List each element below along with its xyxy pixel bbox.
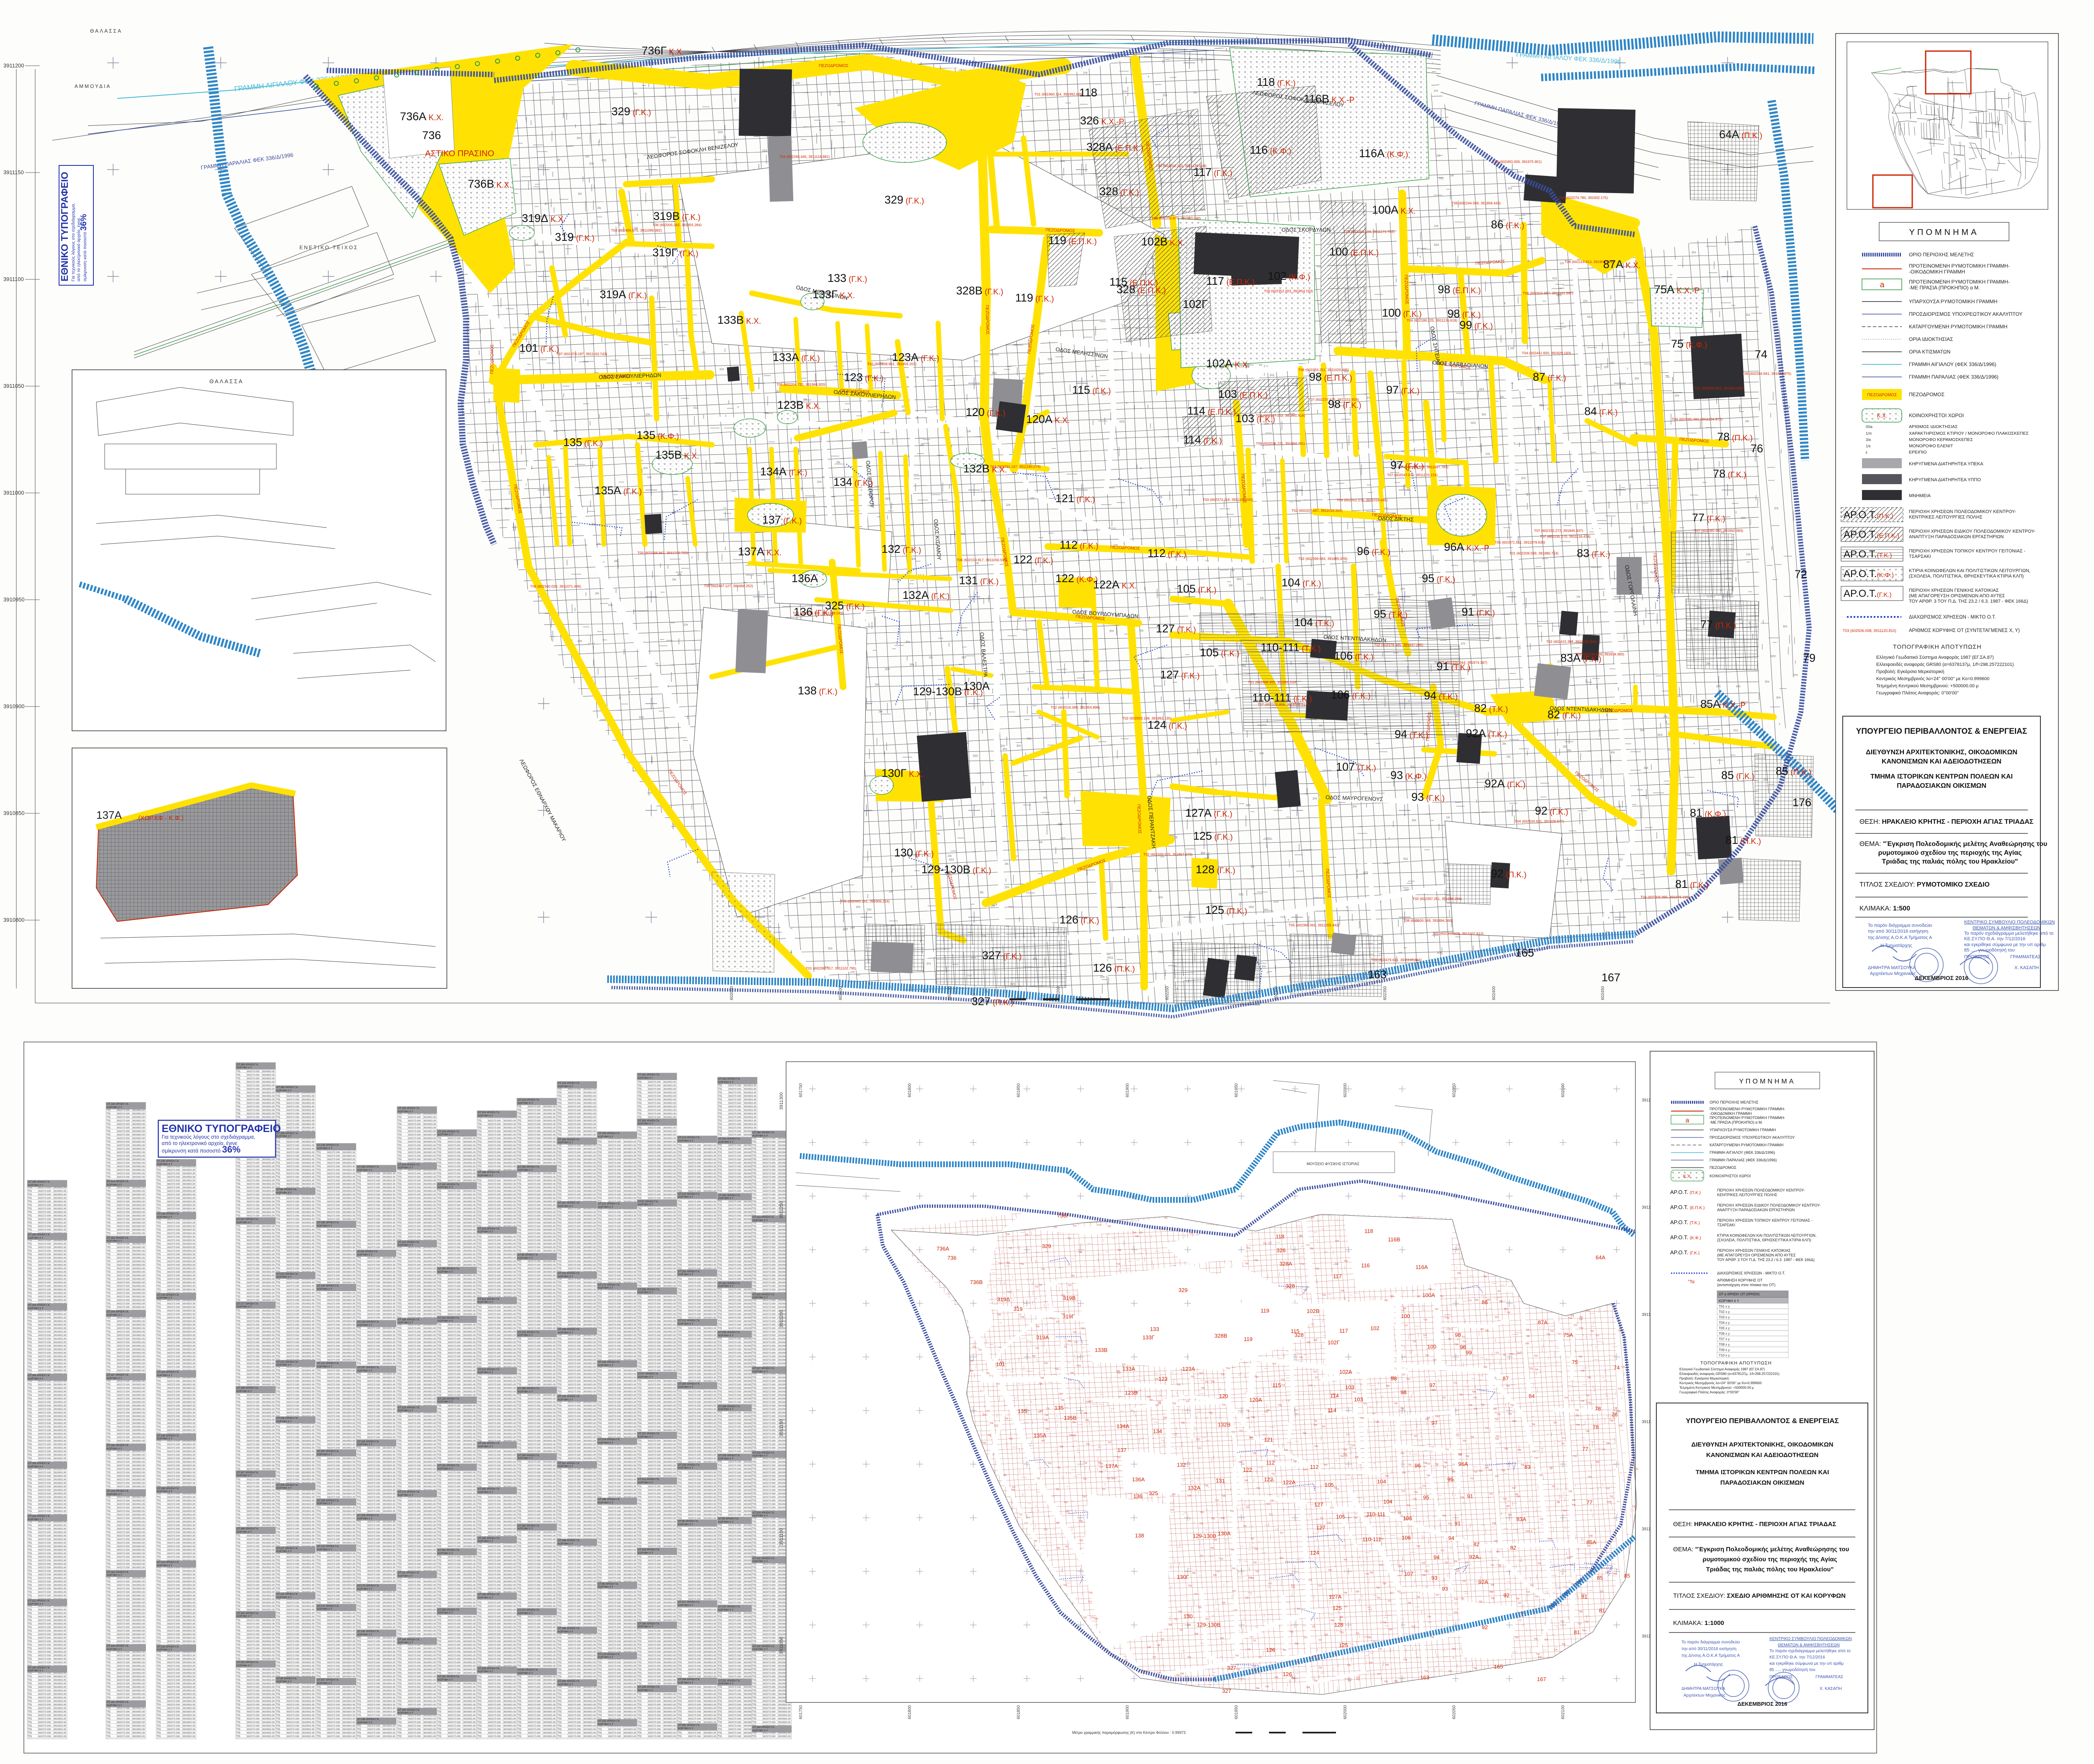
svg-text:την από 30/11/2016 εισήγηση: την από 30/11/2016 εισήγηση <box>1681 1646 1736 1651</box>
svg-text:T04 (602441.820, 391929.193): T04 (602441.820, 391929.193) <box>1522 351 1571 355</box>
svg-text:ΟΤ:153 ΧΡΗΣΗ Γ.Κ.: ΟΤ:153 ΧΡΗΣΗ Γ.Κ. <box>107 1237 129 1240</box>
svg-text:736Β: 736Β <box>970 1279 983 1285</box>
svg-text:ΚΑΤΑΡΓΟΥΜΕΝΗ ΡΥΜΟΤΟΜΙΚΗ ΓΡΑΜΜΗ: ΚΑΤΑΡΓΟΥΜΕΝΗ ΡΥΜΟΤΟΜΙΚΗ ΓΡΑΜΜΗ <box>1909 324 2007 330</box>
svg-text:1/π: 1/π <box>1060 697 1065 700</box>
svg-text:ΟΤ:188 ΧΡΗΣΗ Γ.Κ.: ΟΤ:188 ΧΡΗΣΗ Γ.Κ. <box>398 1319 420 1321</box>
svg-text:T28: T28 <box>1422 1574 1426 1577</box>
svg-text:ΚΟΡΥΦΗ Χ Υ: ΚΟΡΥΦΗ Χ Υ <box>518 1169 533 1172</box>
svg-text:ΚΟΡΥΦΗ Χ Υ: ΚΟΡΥΦΗ Χ Υ <box>357 1324 373 1327</box>
svg-text:1/π: 1/π <box>1452 738 1457 741</box>
svg-text:ΚΟΡΥΦΗ Χ Υ: ΚΟΡΥΦΗ Χ Υ <box>28 1184 44 1187</box>
svg-text:T03: T03 <box>1458 1454 1462 1457</box>
svg-text:ΟΤ:305 ΧΡΗΣΗ Γ.Κ.: ΟΤ:305 ΧΡΗΣΗ Γ.Κ. <box>638 1120 660 1122</box>
svg-text:ΚΟΡΥΦΗ Χ Υ: ΚΟΡΥΦΗ Χ Υ <box>718 1285 734 1288</box>
svg-text:T05: T05 <box>1003 1474 1007 1477</box>
svg-text:T20: T20 <box>1071 1275 1075 1277</box>
svg-text:023: 023 <box>1363 872 1368 874</box>
svg-text:T28: T28 <box>988 1434 991 1437</box>
svg-text:T08: T08 <box>1491 1584 1494 1586</box>
svg-text:104: 104 <box>1377 1478 1386 1485</box>
svg-text:ε: ε <box>1567 863 1568 866</box>
svg-text:T22: T22 <box>1073 1331 1077 1334</box>
svg-text:ΚΟΡΥΦΗ Χ Υ: ΚΟΡΥΦΗ Χ Υ <box>598 1586 614 1589</box>
svg-text:T20: T20 <box>1085 1419 1089 1422</box>
svg-text:ΠΡΟΣΔΙΟΡΙΣΜΟΣ ΥΠΟΧΡΕΩΤΙΚΟΥ ΑΚΑ: ΠΡΟΣΔΙΟΡΙΣΜΟΣ ΥΠΟΧΡΕΩΤΙΚΟΥ ΑΚΑΛΥΠΤΟΥ <box>1909 311 2022 317</box>
svg-text:T02: T02 <box>1485 1330 1489 1332</box>
svg-text:T28: T28 <box>1039 1383 1042 1385</box>
svg-text:ΠΡΟΣΔΙΟΡΙΣΜΟΣ ΥΠΟΧΡΕΩΤΙΚΟΥ ΑΚΑ: ΠΡΟΣΔΙΟΡΙΣΜΟΣ ΥΠΟΧΡΕΩΤΙΚΟΥ ΑΚΑΛΥΠΤΟΥ <box>1710 1135 1795 1140</box>
svg-text:ΚΟΡΥΦΗ Χ Υ: ΚΟΡΥΦΗ Χ Υ <box>678 1196 694 1199</box>
svg-text:T06: T06 <box>1501 1470 1505 1472</box>
svg-text:T17: T17 <box>1330 1507 1334 1509</box>
svg-text:T21: T21 <box>1248 1577 1252 1579</box>
svg-text:T08 (602415.957, 3911101.597): T08 (602415.957, 3911101.597) <box>1523 291 1573 295</box>
svg-text:ΟΡΙΑ ΙΔΙΟΚΤΗΣΙΑΣ: ΟΡΙΑ ΙΔΙΟΚΤΗΣΙΑΣ <box>1909 336 1953 342</box>
svg-text:T15: T15 <box>1245 1597 1249 1599</box>
svg-text:-ΜΕ ΠΡΑΣΙΑ (ΠΡΟΚΗΠΙΟ) α Μ.: -ΜΕ ΠΡΑΣΙΑ (ΠΡΟΚΗΠΙΟ) α Μ. <box>1909 285 1980 291</box>
svg-text:ΚΟΡΥΦΗ Χ Υ: ΚΟΡΥΦΗ Χ Υ <box>107 1493 122 1496</box>
svg-text:T27: T27 <box>1280 1532 1284 1534</box>
svg-text:T09: T09 <box>1512 1487 1516 1490</box>
svg-text:3/π: 3/π <box>1158 896 1163 899</box>
svg-text:T09: T09 <box>1180 1673 1184 1675</box>
svg-text:ΟΤ:136 ΧΡΗΣΗ Γ.Κ.: ΟΤ:136 ΧΡΗΣΗ Γ.Κ. <box>107 1103 129 1106</box>
svg-text:325: 325 <box>1149 1490 1158 1496</box>
svg-text:ε: ε <box>907 601 908 604</box>
svg-text:ΚΟΡΥΦΗ Χ Υ: ΚΟΡΥΦΗ Χ Υ <box>438 1679 453 1681</box>
svg-text:T07: T07 <box>1149 1399 1153 1402</box>
svg-text:T22: T22 <box>1586 1395 1590 1397</box>
svg-text:T08 (602250.874, 391903.040): T08 (602250.874, 391903.040) <box>1152 216 1201 220</box>
svg-text:T25: T25 <box>1271 1480 1274 1482</box>
svg-text:736: 736 <box>947 1255 957 1261</box>
svg-text:T19: T19 <box>1352 1391 1356 1394</box>
svg-text:T18: T18 <box>1588 1476 1591 1478</box>
svg-text:T10: T10 <box>1216 1571 1220 1573</box>
svg-text:ΟΤ:134 ΧΡΗΣΗ Γ.Κ.: ΟΤ:134 ΧΡΗΣΗ Γ.Κ. <box>107 1490 129 1493</box>
svg-text:ΟΤ:238 ΧΡΗΣΗ Γ.Κ.: ΟΤ:238 ΧΡΗΣΗ Γ.Κ. <box>157 1435 179 1437</box>
svg-text:T01: T01 <box>1579 1316 1583 1319</box>
svg-text:ΚΟΡΥΦΗ Χ Υ: ΚΟΡΥΦΗ Χ Υ <box>718 1335 734 1337</box>
svg-text:T24: T24 <box>1495 1438 1499 1441</box>
svg-text:T28: T28 <box>1348 1679 1351 1682</box>
svg-text:T18: T18 <box>1510 1404 1514 1407</box>
svg-text:ε: ε <box>1044 624 1045 627</box>
svg-text:T08: T08 <box>1517 1449 1521 1452</box>
svg-text:ΟΤ:99 ΧΡΗΣΗ Γ.Κ.: ΟΤ:99 ΧΡΗΣΗ Γ.Κ. <box>518 1254 539 1256</box>
svg-text:T07 (602047.010, 3911170.131): T07 (602047.010, 3911170.131) <box>1387 473 1438 477</box>
svg-text:T17: T17 <box>1088 1601 1092 1603</box>
svg-text:135Β: 135Β <box>1064 1415 1076 1421</box>
svg-text:ε: ε <box>1606 714 1607 717</box>
svg-text:a: a <box>1880 281 1885 289</box>
svg-text:T30: T30 <box>1249 1437 1253 1439</box>
svg-text:T06: T06 <box>1454 1344 1458 1346</box>
svg-text:ε: ε <box>1151 740 1153 743</box>
svg-text:T28: T28 <box>1299 1235 1302 1238</box>
svg-text:133Β: 133Β <box>1095 1347 1107 1353</box>
svg-text:T30: T30 <box>1539 1474 1543 1477</box>
svg-text:Μέτρο γραμμικής παραμόρφωσης (: Μέτρο γραμμικής παραμόρφωσης (Κ) στο Κέν… <box>1072 1730 1186 1735</box>
svg-text:T07: T07 <box>1389 1629 1393 1631</box>
svg-text:ΚΟΡΥΦΗ Χ Υ: ΚΟΡΥΦΗ Χ Υ <box>438 1612 453 1614</box>
svg-text:T29: T29 <box>1266 1503 1270 1506</box>
svg-text:123Α: 123Α <box>1182 1366 1195 1372</box>
svg-text:ΚΟΡΥΦΗ Χ Υ: ΚΟΡΥΦΗ Χ Υ <box>753 1371 768 1373</box>
svg-text:ΟΤ:159 ΧΡΗΣΗ Γ.Κ.: ΟΤ:159 ΧΡΗΣΗ Γ.Κ. <box>398 1107 420 1110</box>
svg-text:ΟΤ:203 ΧΡΗΣΗ Γ.Κ.: ΟΤ:203 ΧΡΗΣΗ Γ.Κ. <box>753 1452 775 1455</box>
svg-text:ΟΤ:113 ΧΡΗΣΗ Γ.Κ.: ΟΤ:113 ΧΡΗΣΗ Γ.Κ. <box>753 1216 775 1219</box>
svg-text:136Α: 136Α <box>1132 1476 1145 1483</box>
svg-text:ρυμοτομικού σχεδίου της περιοχ: ρυμοτομικού σχεδίου της περιοχής της Αγί… <box>1702 1556 1837 1563</box>
svg-text:ΟΤ:232 ΧΡΗΣΗ Γ.Κ.: ΟΤ:232 ΧΡΗΣΗ Γ.Κ. <box>598 1720 620 1723</box>
svg-text:T11: T11 <box>1558 1333 1561 1336</box>
svg-text:ΑΝΑΠΤΥΞΗ ΠΑΡΑΔΟΣΙΑΚΩΝ ΕΡΓΑΣΤΗΡ: ΑΝΑΠΤΥΞΗ ΠΑΡΑΔΟΣΙΑΚΩΝ ΕΡΓΑΣΤΗΡΙΩΝ <box>1909 534 2004 539</box>
svg-text:T19: T19 <box>1117 1263 1120 1266</box>
svg-text:ΚΟΡΥΦΗ Χ Υ: ΚΟΡΥΦΗ Χ Υ <box>478 1231 493 1233</box>
svg-text:1/ε: 1/ε <box>1866 444 1871 449</box>
svg-text:601750: 601750 <box>799 1083 803 1097</box>
svg-text:T13: T13 <box>1161 1678 1165 1681</box>
svg-text:ΟΤ:186 ΧΡΗΣΗ Γ.Κ.: ΟΤ:186 ΧΡΗΣΗ Γ.Κ. <box>558 1627 580 1630</box>
svg-text:3/π: 3/π <box>1201 852 1205 855</box>
svg-text:T04: T04 <box>997 1314 1001 1316</box>
svg-text:ε: ε <box>1480 578 1481 580</box>
svg-text:ΟΤ:96 ΧΡΗΣΗ Γ.Κ.: ΟΤ:96 ΧΡΗΣΗ Γ.Κ. <box>678 1520 699 1523</box>
svg-text:ΟΤ:198 ΧΡΗΣΗ Γ.Κ.: ΟΤ:198 ΧΡΗΣΗ Γ.Κ. <box>558 1540 580 1542</box>
svg-text:ε: ε <box>1267 971 1268 974</box>
svg-text:1/κ: 1/κ <box>1446 816 1450 819</box>
svg-text:T12: T12 <box>1199 1555 1203 1558</box>
svg-text:3/π: 3/π <box>981 500 986 503</box>
svg-text:1/κ: 1/κ <box>803 398 807 401</box>
svg-text:ΚΟΡΥΦΗ Χ Υ: ΚΟΡΥΦΗ Χ Υ <box>276 1192 292 1194</box>
svg-text:ΚΟΡΥΦΗ Χ Υ: ΚΟΡΥΦΗ Χ Υ <box>357 1722 373 1724</box>
svg-text:ΟΤ:328 ΧΡΗΣΗ Γ.Κ.: ΟΤ:328 ΧΡΗΣΗ Γ.Κ. <box>357 1441 379 1443</box>
svg-text:T23: T23 <box>1512 1420 1516 1423</box>
svg-text:ΟΤ:228 ΧΡΗΣΗ Γ.Κ.: ΟΤ:228 ΧΡΗΣΗ Γ.Κ. <box>678 1464 700 1467</box>
svg-text:T06 (602340.020, 3911071.446): T06 (602340.020, 3911071.446) <box>530 584 581 588</box>
svg-text:ΟΤ:249 ΧΡΗΣΗ Γ.Κ.: ΟΤ:249 ΧΡΗΣΗ Γ.Κ. <box>598 1132 620 1135</box>
svg-text:T28: T28 <box>1056 1547 1060 1550</box>
svg-text:T02: T02 <box>1534 1355 1538 1357</box>
svg-text:ΟΤ:298 ΧΡΗΣΗ Γ.Κ.: ΟΤ:298 ΧΡΗΣΗ Γ.Κ. <box>638 1289 660 1291</box>
svg-text:2/π: 2/π <box>1604 366 1609 369</box>
svg-text:T01: T01 <box>1056 1488 1060 1491</box>
svg-text:3/π: 3/π <box>1644 767 1648 770</box>
svg-text:T22: T22 <box>1435 1594 1439 1596</box>
svg-text:023: 023 <box>973 755 978 758</box>
svg-text:T27: T27 <box>1560 1620 1564 1623</box>
svg-text:ΟΤ:178 ΧΡΗΣΗ Γ.Κ.: ΟΤ:178 ΧΡΗΣΗ Γ.Κ. <box>157 1294 179 1297</box>
svg-text:T17: T17 <box>1306 1244 1310 1247</box>
svg-text:T21: T21 <box>978 1349 982 1351</box>
svg-text:1/κ: 1/κ <box>556 159 560 162</box>
svg-text:2/π: 2/π <box>828 947 833 950</box>
svg-text:ΟΤ:166 ΧΡΗΣΗ Γ.Κ.: ΟΤ:166 ΧΡΗΣΗ Γ.Κ. <box>237 1528 259 1530</box>
svg-text:ΚΟΡΥΦΗ Χ Υ: ΚΟΡΥΦΗ Χ Υ <box>317 1288 333 1291</box>
svg-text:91: 91 <box>1454 1520 1460 1527</box>
svg-text:ΚΟΡΥΦΗ Χ Υ: ΚΟΡΥΦΗ Χ Υ <box>276 1135 292 1138</box>
svg-text:ΟΤ:191 ΧΡΗΣΗ Γ.Κ.: ΟΤ:191 ΧΡΗΣΗ Γ.Κ. <box>638 1074 660 1076</box>
svg-text:1/κ: 1/κ <box>1251 865 1255 868</box>
svg-text:ΟΤ:156 ΧΡΗΣΗ Γ.Κ.: ΟΤ:156 ΧΡΗΣΗ Γ.Κ. <box>638 1623 660 1625</box>
svg-text:T01: T01 <box>1209 1412 1212 1414</box>
svg-text:T05: T05 <box>1263 1243 1267 1245</box>
svg-text:T12: T12 <box>1435 1416 1439 1418</box>
svg-text:2/κ: 2/κ <box>1229 584 1233 587</box>
svg-text:της Δ/νσης Α.Ο.Κ.Α Τμήματος: της Δ/νσης Α.Ο.Κ.Α Τμήματος Α <box>1868 935 1932 940</box>
svg-text:ΚΟΡΥΦΗ Χ Υ: ΚΟΡΥΦΗ Χ Υ <box>518 1457 533 1460</box>
svg-text:105: 105 <box>1325 1482 1334 1488</box>
svg-text:3/π: 3/π <box>1412 819 1416 822</box>
svg-text:T28: T28 <box>1039 1410 1043 1413</box>
svg-text:ΟΤ:161 ΧΡΗΣΗ Γ.Κ.: ΟΤ:161 ΧΡΗΣΗ Γ.Κ. <box>438 1676 460 1678</box>
svg-text:77: 77 <box>1582 1446 1588 1452</box>
svg-text:T07: T07 <box>983 1414 987 1416</box>
svg-text:100: 100 <box>1401 1313 1410 1319</box>
svg-text:T11: T11 <box>1046 1408 1050 1410</box>
svg-text:011: 011 <box>694 407 698 410</box>
svg-text:ΑΣΤΙΚΟ ΠΡΑΣΙΝΟ: ΑΣΤΙΚΟ ΠΡΑΣΙΝΟ <box>425 149 494 158</box>
svg-text:T19: T19 <box>1506 1385 1510 1387</box>
svg-text:T07 (602090.480, 391992.093): T07 (602090.480, 391992.093) <box>1694 529 1743 533</box>
svg-text:T24: T24 <box>1530 1584 1534 1587</box>
svg-text:T24: T24 <box>1006 1233 1010 1236</box>
svg-text:601950: 601950 <box>1234 1705 1239 1719</box>
svg-text:ΟΤ:112 ΧΡΗΣΗ Γ.Κ.: ΟΤ:112 ΧΡΗΣΗ Γ.Κ. <box>638 1478 660 1481</box>
svg-text:98: 98 <box>1455 1332 1461 1338</box>
svg-text:ε: ε <box>637 214 638 217</box>
svg-text:3/π: 3/π <box>911 558 916 561</box>
svg-text:Χ. ΚΑΣΑΠΗ: Χ. ΚΑΣΑΠΗ <box>1820 1687 1842 1691</box>
svg-text:2/κ: 2/κ <box>1527 244 1532 247</box>
svg-text:1/κ: 1/κ <box>1472 594 1476 597</box>
svg-text:ΚΟΡΥΦΗ Χ Υ: ΚΟΡΥΦΗ Χ Υ <box>718 1609 734 1612</box>
svg-text:1/π: 1/π <box>512 333 517 336</box>
svg-text:ΥΠΟΥΡΓΕΙΟ ΠΕΡΙΒΑΛΛΟΝΤΟΣ & ΕΝΕΡ: ΥΠΟΥΡΓΕΙΟ ΠΕΡΙΒΑΛΛΟΝΤΟΣ & ΕΝΕΡΓΕΙΑΣ <box>1856 727 2027 736</box>
svg-text:T11: T11 <box>1407 1504 1410 1507</box>
svg-text:T09: T09 <box>1244 1480 1248 1482</box>
svg-text:ΚΟΡΥΦΗ Χ Υ: ΚΟΡΥΦΗ Χ Υ <box>558 1631 573 1633</box>
svg-text:T01: T01 <box>1091 1617 1095 1619</box>
svg-text:T03: T03 <box>1618 1330 1622 1332</box>
svg-text:T01 (602209.599, 391880.714): T01 (602209.599, 391880.714) <box>1509 551 1558 555</box>
svg-text:T12: T12 <box>1037 1478 1040 1480</box>
svg-text:1/π: 1/π <box>1461 642 1465 645</box>
svg-text:T28: T28 <box>990 1422 993 1425</box>
svg-text:T02: T02 <box>1073 1434 1076 1437</box>
svg-text:ΟΤ:108 ΧΡΗΣΗ Γ.Κ.: ΟΤ:108 ΧΡΗΣΗ Γ.Κ. <box>28 1462 50 1465</box>
svg-text:T09: T09 <box>1414 1491 1418 1494</box>
svg-text:-ΟΙΚΟΔΟΜΙΚΗ ΓΡΑΜΜΗ: -ΟΙΚΟΔΟΜΙΚΗ ΓΡΑΜΜΗ <box>1710 1112 1752 1116</box>
svg-text:ΚΟΡΥΦΗ Χ Υ: ΚΟΡΥΦΗ Χ Υ <box>157 1565 173 1567</box>
svg-text:T04: T04 <box>1266 1409 1270 1412</box>
svg-text:T21: T21 <box>1340 1632 1344 1634</box>
svg-text:T21: T21 <box>1117 1457 1121 1459</box>
svg-text:011: 011 <box>1048 358 1052 361</box>
svg-text:T14: T14 <box>1322 1426 1326 1428</box>
svg-text:ΠΡΟΤΕΙΝΟΜΕΝΗ ΡΥΜΟΤΟΜΙΚΗ ΓΡΑΜΜΗ: ΠΡΟΤΕΙΝΟΜΕΝΗ ΡΥΜΟΤΟΜΙΚΗ ΓΡΑΜΜΗ- <box>1710 1116 1785 1120</box>
svg-text:ΚΟΡΥΦΗ Χ Υ: ΚΟΡΥΦΗ Χ Υ <box>276 1364 292 1367</box>
svg-text:ΚΟΡΥΦΗ Χ Υ: ΚΟΡΥΦΗ Χ Υ <box>478 1115 493 1117</box>
svg-text:T30: T30 <box>1526 1329 1529 1331</box>
svg-text:023: 023 <box>1434 244 1439 247</box>
svg-text:81: 81 <box>1599 1607 1605 1614</box>
svg-text:T05 (602493.009, 391975.901): T05 (602493.009, 391975.901) <box>1493 160 1542 164</box>
svg-text:T11: T11 <box>1271 1473 1275 1475</box>
svg-text:127: 127 <box>1314 1501 1323 1508</box>
svg-text:1/π: 1/π <box>1545 443 1550 446</box>
svg-text:ΚΟΡΥΦΗ Χ Υ: ΚΟΡΥΦΗ Χ Υ <box>357 1588 373 1591</box>
svg-text:ΚΤΙΡΙΑ ΚΟΙΝΩΦΕΛΩΝ ΚΑΙ ΠΟΛΙΤΙΣΤ: ΚΤΙΡΙΑ ΚΟΙΝΩΦΕΛΩΝ ΚΑΙ ΠΟΛΙΤΙΣΤΙΚΩΝ ΛΕΙΤΟ… <box>1909 568 2030 573</box>
svg-text:3910800: 3910800 <box>3 917 25 923</box>
svg-text:ε: ε <box>1627 367 1628 370</box>
svg-text:T23: T23 <box>1315 1658 1319 1661</box>
svg-text:Για τεχνικούς λόγους στο σχεδι: Για τεχνικούς λόγους στο σχεδιάγραμμα, <box>162 1134 255 1140</box>
svg-text:T08 x y: T08 x y <box>1719 1343 1730 1346</box>
svg-text:023: 023 <box>1274 900 1279 903</box>
svg-text:T11: T11 <box>1128 1431 1131 1433</box>
svg-text:T24: T24 <box>1503 1498 1507 1501</box>
svg-text:ΜΟΥΣΕΙΟ ΦΥΣΙΚΗΣ ΙΣΤΟΡΙΑΣ: ΜΟΥΣΕΙΟ ΦΥΣΙΚΗΣ ΙΣΤΟΡΙΑΣ <box>1307 1162 1359 1166</box>
svg-text:ΟΤ:251 ΧΡΗΣΗ Γ.Κ.: ΟΤ:251 ΧΡΗΣΗ Γ.Κ. <box>558 1462 580 1465</box>
svg-text:T26: T26 <box>1147 1396 1150 1398</box>
svg-text:T02: T02 <box>1578 1356 1582 1358</box>
svg-text:T27: T27 <box>1404 1325 1408 1327</box>
svg-text:T18: T18 <box>998 1262 1002 1265</box>
svg-text:T17: T17 <box>1449 1328 1452 1331</box>
svg-text:T22: T22 <box>1055 1368 1058 1370</box>
svg-text:74: 74 <box>1755 348 1767 361</box>
svg-text:T27: T27 <box>1251 1538 1254 1540</box>
svg-text:ΚΟΡΥΦΗ Χ Υ: ΚΟΡΥΦΗ Χ Υ <box>157 1297 173 1300</box>
svg-text:T14: T14 <box>1281 1384 1285 1387</box>
svg-text:T07: T07 <box>1318 1639 1322 1642</box>
svg-text:ΠΑΡΑΔΟΣΙΑΚΩΝ ΟΙΚΙΣΜΩΝ: ΠΑΡΑΔΟΣΙΑΚΩΝ ΟΙΚΙΣΜΩΝ <box>1720 1479 1805 1486</box>
svg-text:T11: T11 <box>1485 1427 1488 1430</box>
svg-text:T14: T14 <box>1491 1564 1494 1567</box>
svg-text:T19: T19 <box>1097 1224 1101 1227</box>
svg-text:T28: T28 <box>1086 1401 1090 1403</box>
svg-text:ΚΟΡΥΦΗ Χ Υ: ΚΟΡΥΦΗ Χ Υ <box>276 1596 292 1599</box>
svg-text:ε: ε <box>999 488 1001 491</box>
svg-text:96Α: 96Α <box>1458 1461 1468 1467</box>
svg-text:T21: T21 <box>1333 1487 1337 1489</box>
svg-text:ΧΑΡΑΚΤΗΡΙΣΜΟΣ ΚΤΙΡΙΟΥ / ΜΟΝΟΡΟ: ΧΑΡΑΚΤΗΡΙΣΜΟΣ ΚΤΙΡΙΟΥ / ΜΟΝΟΡΟΦΟ ΠΛΑΚΟΣΚ… <box>1909 431 2029 436</box>
svg-text:T20: T20 <box>1083 1478 1087 1480</box>
svg-text:T30: T30 <box>1428 1288 1432 1291</box>
svg-text:3911250: 3911250 <box>779 1201 784 1219</box>
svg-text:ΚΟΡΥΦΗ Χ Υ: ΚΟΡΥΦΗ Χ Υ <box>28 1237 44 1240</box>
svg-text:ΘΑΛΑΣΣΑ: ΘΑΛΑΣΣΑ <box>209 378 244 384</box>
svg-text:ΟΤ:217 ΧΡΗΣΗ Γ.Κ.: ΟΤ:217 ΧΡΗΣΗ Γ.Κ. <box>678 1601 700 1604</box>
svg-text:T09: T09 <box>1329 1595 1333 1598</box>
svg-text:ΟΤ:156 ΧΡΗΣΗ Γ.Κ.: ΟΤ:156 ΧΡΗΣΗ Γ.Κ. <box>438 1268 460 1270</box>
svg-text:601900: 601900 <box>1125 1705 1130 1719</box>
svg-text:ε: ε <box>1126 402 1127 405</box>
svg-text:T04: T04 <box>1330 1620 1334 1622</box>
svg-text:134Α: 134Α <box>1117 1423 1130 1429</box>
svg-text:T16: T16 <box>1413 1498 1417 1501</box>
svg-text:T02: T02 <box>986 1410 990 1413</box>
svg-text:T27: T27 <box>1122 1364 1126 1366</box>
svg-text:T24: T24 <box>1222 1602 1225 1604</box>
svg-text:2/π: 2/π <box>1508 187 1512 190</box>
svg-text:2/κ: 2/κ <box>875 683 879 686</box>
svg-text:T13: T13 <box>1473 1397 1477 1399</box>
svg-text:T10: T10 <box>1573 1324 1577 1327</box>
svg-text:T17: T17 <box>1563 1510 1567 1512</box>
svg-text:ΠΕΡΙΟΧΗ ΧΡΗΣΕΩΝ ΤΟΠΙΚΟΥ ΚΕΝΤΡΟ: ΠΕΡΙΟΧΗ ΧΡΗΣΕΩΝ ΤΟΠΙΚΟΥ ΚΕΝΤΡΟΥ ΓΕΙΤΟΝΙΑ… <box>1909 549 2026 554</box>
svg-text:128: 128 <box>1334 1622 1344 1628</box>
svg-text:ΚΟΡΥΦΗ Χ Υ: ΚΟΡΥΦΗ Χ Υ <box>157 1438 173 1440</box>
svg-text:T10: T10 <box>1230 1510 1234 1513</box>
svg-text:ΟΤ:121 ΧΡΗΣΗ Γ.Κ.: ΟΤ:121 ΧΡΗΣΗ Γ.Κ. <box>598 1203 620 1205</box>
svg-text:2/κ: 2/κ <box>595 592 599 595</box>
svg-text:ΚΟΡΥΦΗ Χ Υ: ΚΟΡΥΦΗ Χ Υ <box>718 1408 734 1411</box>
svg-text:T12: T12 <box>1049 1317 1053 1320</box>
svg-text:ΚΟΡΥΦΗ Χ Υ: ΚΟΡΥΦΗ Χ Υ <box>438 1134 453 1136</box>
svg-text:T11: T11 <box>1303 1432 1306 1435</box>
svg-text:T05: T05 <box>1328 1411 1332 1413</box>
svg-text:T24: T24 <box>1360 1417 1364 1420</box>
svg-text:1/π: 1/π <box>1259 752 1264 755</box>
svg-text:ΚΟΡΥΦΗ Χ Υ: ΚΟΡΥΦΗ Χ Υ <box>438 1186 453 1189</box>
svg-text:2/κ: 2/κ <box>1005 863 1009 866</box>
svg-text:2/κ: 2/κ <box>1140 629 1144 632</box>
svg-text:T26: T26 <box>1246 1506 1249 1509</box>
svg-text:023: 023 <box>1658 734 1663 737</box>
svg-text:ΕΘΝΙΚΟ ΤΥΠΟΓΡΑΦΕΙΟ: ΕΘΝΙΚΟ ΤΥΠΟΓΡΑΦΕΙΟ <box>59 172 70 281</box>
svg-text:T08 (602333.251, 3911020.495): T08 (602333.251, 3911020.495) <box>1298 368 1349 372</box>
svg-text:118: 118 <box>1364 1228 1373 1234</box>
svg-text:ΟΤ:191 ΧΡΗΣΗ Γ.Κ.: ΟΤ:191 ΧΡΗΣΗ Γ.Κ. <box>357 1630 379 1633</box>
svg-text:ε: ε <box>1509 281 1510 284</box>
svg-text:T15: T15 <box>1536 1653 1540 1656</box>
svg-text:ε: ε <box>1389 837 1390 840</box>
svg-text:136: 136 <box>1133 1493 1142 1499</box>
svg-text:2/π: 2/π <box>1774 507 1779 510</box>
svg-text:και εγκρίθηκε σύμφωνα με την υ: και εγκρίθηκε σύμφωνα με την υπ αριθμ <box>1964 942 2046 947</box>
svg-text:ΚΟΡΥΦΗ Χ Υ: ΚΟΡΥΦΗ Χ Υ <box>276 1550 292 1553</box>
svg-text:T09: T09 <box>1589 1535 1593 1537</box>
svg-text:3/π: 3/π <box>1266 479 1271 482</box>
svg-text:T11: T11 <box>1247 1648 1251 1651</box>
svg-text:T07: T07 <box>1602 1449 1606 1451</box>
svg-text:T29: T29 <box>1367 1637 1371 1639</box>
svg-text:T26: T26 <box>1255 1571 1259 1573</box>
svg-text:ΚΟΡΥΦΗ Χ Υ: ΚΟΡΥΦΗ Χ Υ <box>157 1216 173 1219</box>
svg-text:T20: T20 <box>1132 1232 1136 1234</box>
svg-text:T02: T02 <box>1032 1355 1036 1358</box>
svg-text:T30: T30 <box>1480 1328 1484 1331</box>
svg-text:2/κ: 2/κ <box>1436 155 1441 157</box>
svg-text:T30: T30 <box>1245 1263 1248 1265</box>
svg-text:ΚΟΡΥΦΗ Χ Υ: ΚΟΡΥΦΗ Χ Υ <box>718 1141 734 1144</box>
svg-text:Προβολή: Εγκάρσια Μερκατορική: Προβολή: Εγκάρσια Μερκατορική <box>1876 669 1944 674</box>
svg-text:601900: 601900 <box>1125 1083 1130 1097</box>
svg-text:T08: T08 <box>1572 1504 1576 1506</box>
svg-text:98: 98 <box>1460 1344 1466 1350</box>
svg-text:ΓΡΑΜΜΗ ΠΑΡΑΛΙΑΣ (ΦΕΚ 336/Δ/199: ΓΡΑΜΜΗ ΠΑΡΑΛΙΑΣ (ΦΕΚ 336/Δ/1996) <box>1710 1158 1777 1162</box>
svg-text:ΚΟΡΥΦΗ Χ Υ: ΚΟΡΥΦΗ Χ Υ <box>398 1575 413 1578</box>
svg-text:T17: T17 <box>1239 1430 1243 1432</box>
svg-text:2/π: 2/π <box>1521 477 1526 480</box>
svg-text:ΚΟΡΥΦΗ Χ Υ: ΚΟΡΥΦΗ Χ Υ <box>638 1123 653 1125</box>
svg-text:T08: T08 <box>1306 1687 1310 1689</box>
svg-text:T26: T26 <box>1157 1672 1161 1674</box>
